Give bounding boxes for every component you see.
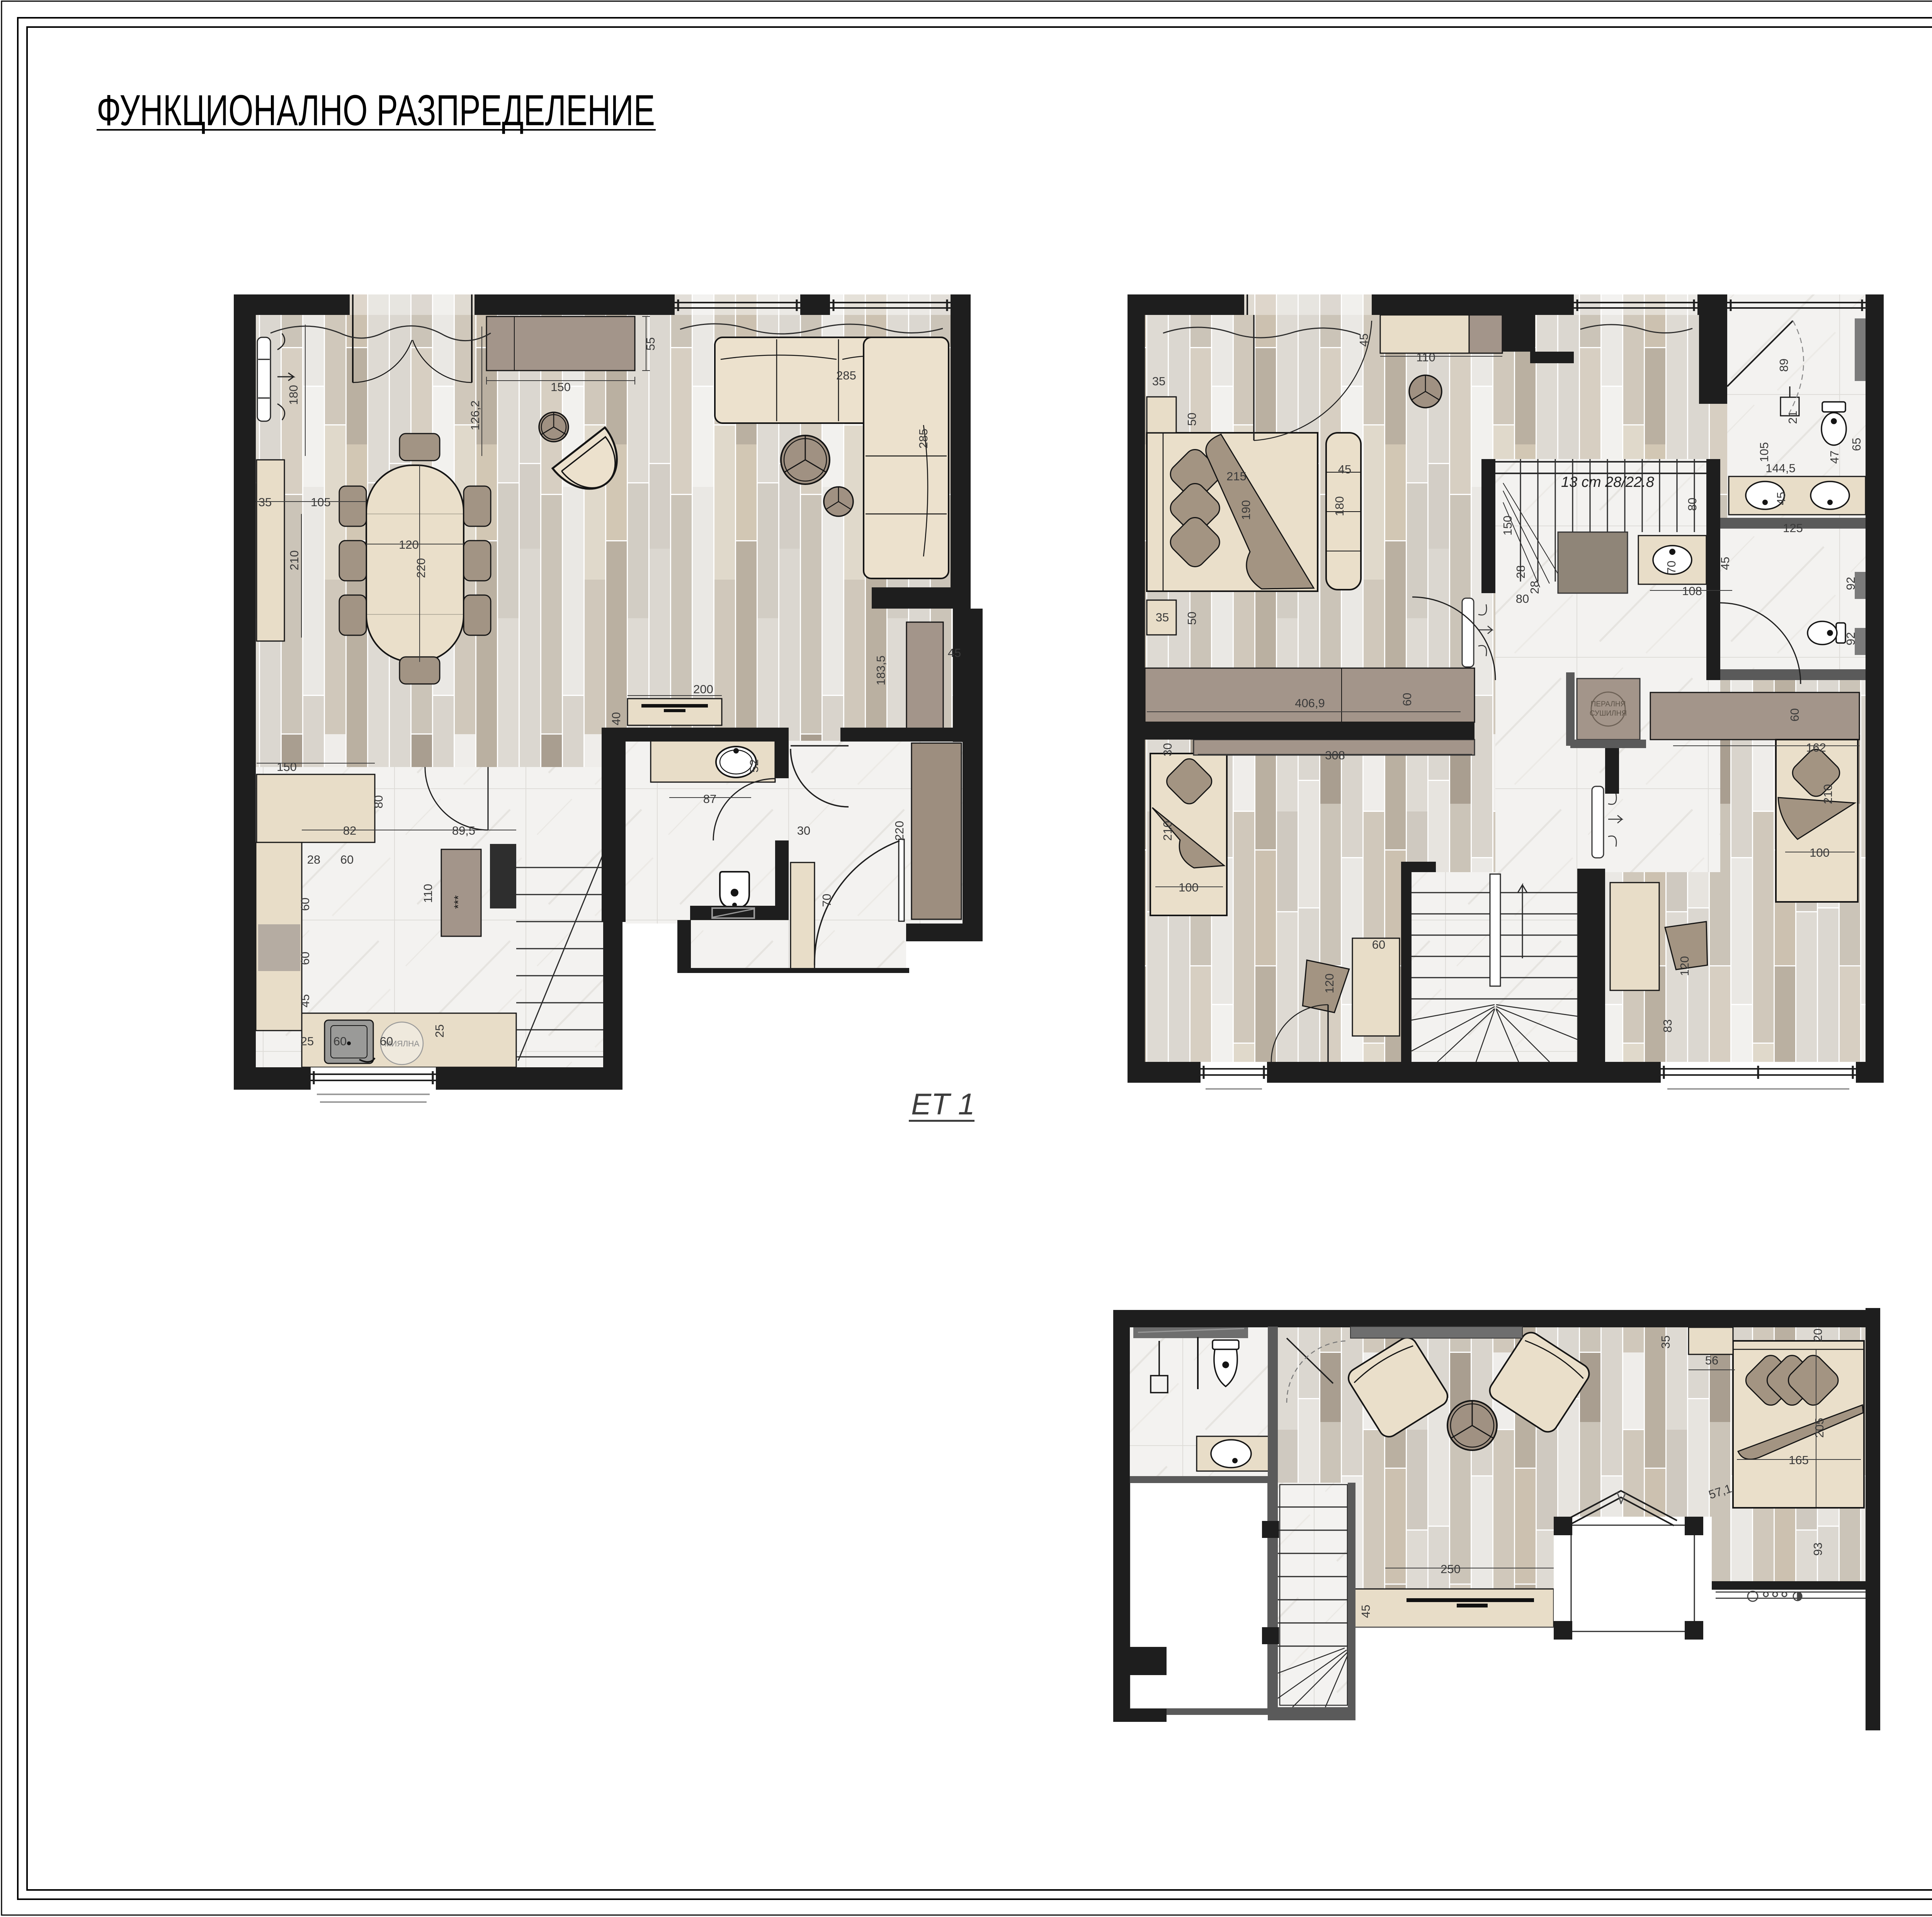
svg-text:285: 285 (917, 429, 930, 449)
svg-text:35: 35 (1659, 1335, 1672, 1349)
svg-text:180: 180 (1333, 496, 1346, 516)
svg-text:210: 210 (287, 550, 301, 570)
svg-text:89,5: 89,5 (452, 824, 475, 837)
svg-text:183,5: 183,5 (874, 655, 888, 685)
svg-text:50: 50 (1185, 413, 1199, 426)
svg-text:45: 45 (1357, 333, 1371, 347)
svg-text:60: 60 (298, 952, 312, 965)
svg-text:150: 150 (277, 760, 297, 774)
svg-text:ET 1: ET 1 (911, 1087, 975, 1121)
svg-text:165: 165 (1789, 1453, 1809, 1467)
svg-text:105: 105 (311, 495, 331, 509)
svg-text:200: 200 (693, 682, 713, 696)
svg-text:220: 220 (414, 558, 428, 578)
svg-text:180: 180 (287, 385, 300, 405)
svg-text:45: 45 (948, 646, 961, 660)
svg-text:45: 45 (1338, 463, 1351, 476)
svg-text:55: 55 (644, 337, 657, 350)
svg-text:93: 93 (1811, 1543, 1825, 1556)
svg-text:25: 25 (301, 1034, 314, 1048)
svg-text:30: 30 (1161, 743, 1174, 756)
svg-text:150: 150 (1501, 515, 1514, 536)
svg-text:45: 45 (1359, 1605, 1372, 1618)
svg-text:35: 35 (1156, 611, 1169, 624)
svg-text:220: 220 (893, 821, 906, 841)
svg-text:70: 70 (820, 894, 833, 907)
svg-text:60: 60 (1372, 938, 1385, 951)
svg-text:87: 87 (703, 792, 716, 806)
svg-text:70: 70 (1665, 561, 1678, 574)
svg-text:21: 21 (1786, 411, 1799, 424)
svg-text:80: 80 (372, 795, 385, 808)
svg-text:83: 83 (1661, 1019, 1674, 1032)
svg-text:28: 28 (307, 853, 320, 866)
svg-text:80: 80 (1685, 498, 1699, 511)
svg-text:***: *** (452, 895, 465, 909)
svg-text:100: 100 (1810, 846, 1830, 859)
svg-text:20: 20 (1811, 1328, 1825, 1342)
svg-text:СУШИЛНЯ: СУШИЛНЯ (1590, 709, 1627, 718)
svg-text:60: 60 (380, 1034, 393, 1048)
svg-text:52: 52 (747, 759, 761, 772)
svg-text:ФУНКЦИОНАЛНО РАЗПРЕДЕЛЕНИЕ: ФУНКЦИОНАЛНО РАЗПРЕДЕЛЕНИЕ (97, 86, 655, 134)
svg-text:80: 80 (1516, 592, 1529, 606)
svg-text:28: 28 (1528, 581, 1541, 594)
svg-text:56: 56 (1705, 1354, 1718, 1367)
svg-text:13 cm 28/22.8: 13 cm 28/22.8 (1561, 474, 1654, 490)
svg-text:205: 205 (1813, 1418, 1826, 1438)
svg-text:35: 35 (259, 495, 272, 509)
svg-text:50: 50 (1185, 612, 1199, 625)
svg-text:110: 110 (1416, 350, 1435, 364)
svg-text:47: 47 (1828, 451, 1841, 464)
svg-text:92: 92 (1844, 632, 1857, 645)
svg-text:25: 25 (433, 1024, 446, 1038)
svg-text:150: 150 (551, 380, 571, 394)
svg-text:105: 105 (1757, 442, 1771, 462)
svg-text:108: 108 (1682, 584, 1702, 598)
svg-text:210: 210 (1161, 821, 1174, 841)
svg-text:45: 45 (298, 994, 312, 1007)
svg-text:144,5: 144,5 (1765, 461, 1796, 475)
svg-text:60: 60 (1788, 708, 1801, 721)
svg-text:35: 35 (1152, 374, 1165, 388)
svg-text:28: 28 (1514, 565, 1527, 578)
svg-text:60: 60 (298, 898, 312, 911)
svg-text:100: 100 (1179, 881, 1199, 894)
svg-text:406,9: 406,9 (1295, 696, 1325, 710)
svg-text:125: 125 (1783, 521, 1803, 535)
svg-text:89: 89 (1777, 359, 1791, 372)
svg-text:120: 120 (1323, 973, 1336, 993)
svg-text:60: 60 (340, 853, 354, 866)
svg-text:45: 45 (1774, 492, 1788, 505)
svg-text:215: 215 (1226, 469, 1247, 483)
svg-text:92: 92 (1844, 577, 1857, 590)
svg-text:285: 285 (836, 369, 856, 382)
svg-text:250: 250 (1440, 1562, 1461, 1576)
svg-text:126,2: 126,2 (468, 400, 482, 430)
svg-text:60: 60 (1400, 693, 1414, 706)
svg-text:120: 120 (1678, 956, 1691, 976)
svg-text:30: 30 (797, 824, 810, 837)
svg-text:40: 40 (609, 712, 623, 725)
svg-text:308: 308 (1325, 748, 1345, 762)
svg-text:120: 120 (399, 538, 419, 551)
svg-text:190: 190 (1239, 500, 1253, 520)
svg-text:210: 210 (1821, 784, 1835, 804)
svg-text:ПЕРАЛНЯ: ПЕРАЛНЯ (1591, 700, 1626, 708)
svg-text:162: 162 (1806, 741, 1826, 754)
svg-text:110: 110 (421, 884, 435, 903)
svg-text:82: 82 (343, 824, 356, 837)
svg-text:60: 60 (333, 1034, 347, 1048)
svg-text:65: 65 (1850, 438, 1863, 451)
svg-text:45: 45 (1718, 557, 1732, 570)
